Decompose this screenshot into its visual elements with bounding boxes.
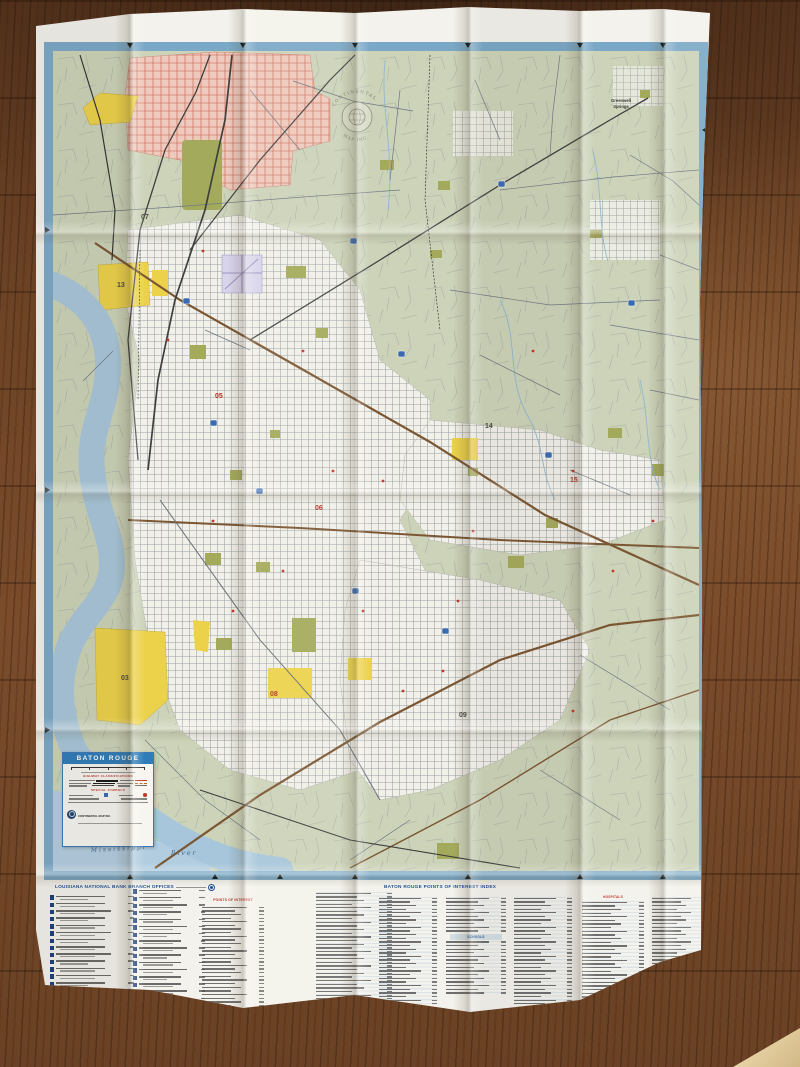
- index-row: [446, 988, 506, 991]
- index-row: [379, 977, 437, 980]
- index-row: [582, 956, 644, 959]
- bank-branch-row: [133, 932, 205, 938]
- index-row: [514, 963, 572, 966]
- index-row: [514, 908, 572, 911]
- index-row: [446, 973, 506, 976]
- index-row: [514, 977, 572, 980]
- index-row: [652, 933, 706, 936]
- index-row: [514, 992, 572, 995]
- index-row: [652, 915, 706, 918]
- index-row: [446, 952, 506, 955]
- index-row: [446, 959, 506, 962]
- grid-tick: [127, 874, 133, 879]
- grid-tick: [352, 43, 358, 48]
- index-row: [202, 931, 264, 934]
- bank-branch-row: [133, 968, 205, 974]
- district-number: 14: [485, 423, 493, 430]
- district-number: 08: [270, 691, 278, 698]
- index-row: [514, 955, 572, 958]
- index-column: [379, 897, 437, 1006]
- map-title-legend-box: BATON ROUGE HIGHWAY CLASSIFICATIONS SPEC…: [62, 752, 154, 847]
- index-row: [202, 993, 264, 996]
- bank-logo-icon: [208, 884, 215, 891]
- special-symbols-heading: SPECIAL SYMBOLS: [63, 788, 153, 792]
- bank-branch-row: [50, 924, 134, 930]
- index-row: [379, 930, 437, 933]
- index-row: [652, 908, 706, 911]
- index-row: [379, 937, 437, 940]
- map-title: BATON ROUGE: [63, 753, 153, 764]
- index-row: [202, 982, 264, 985]
- index-row: [446, 981, 506, 984]
- index-row: [514, 912, 572, 915]
- district-number: 15: [570, 477, 578, 484]
- index-row: [446, 941, 506, 944]
- index-row: [202, 986, 264, 989]
- index-row: [202, 972, 264, 975]
- bank-branch-row: [133, 925, 205, 931]
- index-row: [514, 948, 572, 951]
- grid-tick: [277, 874, 283, 879]
- index-row: [446, 944, 506, 947]
- district-number: 06: [315, 505, 323, 512]
- index-row: [514, 995, 572, 998]
- bank-branch-row: [133, 954, 205, 960]
- bank-branch-row: [133, 939, 205, 945]
- index-row: [514, 926, 572, 929]
- index-row: [202, 961, 264, 964]
- folded-map-sheet: 05 06 08 15 13 03 09 14 07 Greenwell Spr…: [34, 6, 712, 1014]
- index-row: [446, 930, 506, 933]
- index-row: [652, 919, 706, 922]
- index-row: [514, 901, 572, 904]
- index-column: [514, 897, 572, 1006]
- grid-tick: [660, 43, 666, 48]
- bank-branch-row: [133, 947, 205, 953]
- index-row: [446, 977, 506, 980]
- grid-tick: [45, 227, 50, 233]
- index-row: [379, 995, 437, 998]
- index-row: [514, 904, 572, 907]
- bank-branch-row: [133, 982, 205, 988]
- index-row: [379, 901, 437, 904]
- bank-branch-row: [50, 931, 134, 937]
- index-row: [379, 933, 437, 936]
- index-row: [582, 945, 644, 948]
- index-row: [316, 892, 392, 895]
- index-row: [652, 904, 706, 907]
- points-of-interest-header: POINTS OF INTEREST: [202, 898, 264, 902]
- index-row: [379, 926, 437, 929]
- index-row: [514, 915, 572, 918]
- grid-tick: [352, 874, 358, 879]
- poi-index-header: BATON ROUGE POINTS OF INTEREST INDEX: [384, 884, 496, 889]
- grid-tick: [127, 43, 133, 48]
- index-row: [582, 937, 644, 940]
- index-row: [652, 901, 706, 904]
- index-row: [652, 930, 706, 933]
- index-row: [202, 950, 264, 953]
- index-row: [582, 901, 644, 904]
- index-row: [202, 910, 264, 913]
- index-row: [514, 959, 572, 962]
- index-row: [202, 968, 264, 971]
- index-row: [446, 955, 506, 958]
- bank-branch-column: [50, 895, 134, 988]
- index-row: [582, 934, 644, 937]
- index-row: [446, 992, 506, 995]
- index-row: [446, 901, 506, 904]
- bank-branch-row: [50, 960, 134, 966]
- index-row: [582, 952, 644, 955]
- map-drawing: 05 06 08 15 13 03 09 14 07 Greenwell Spr…: [53, 51, 699, 871]
- bank-branch-row: [50, 945, 134, 951]
- index-row: [379, 915, 437, 918]
- index-row: [582, 970, 644, 973]
- highway-classifications-heading: HIGHWAY CLASSIFICATIONS: [63, 774, 153, 778]
- index-row: [379, 941, 437, 944]
- publisher-name: CONTINENTAL MAP INC.: [78, 814, 111, 818]
- index-row: [379, 963, 437, 966]
- bank-branch-row: [50, 917, 134, 923]
- index-row: [582, 908, 644, 911]
- index-row: [379, 955, 437, 958]
- index-row: [652, 937, 706, 940]
- index-row: [446, 963, 506, 966]
- photo-scene: 05 06 08 15 13 03 09 14 07 Greenwell Spr…: [0, 0, 800, 1067]
- index-row: [514, 897, 572, 900]
- index-row: [514, 919, 572, 922]
- bank-branch-row: [50, 909, 134, 915]
- grid-tick: [660, 874, 666, 879]
- bank-branch-row: [50, 902, 134, 908]
- grid-tick: [577, 43, 583, 48]
- index-row: [514, 937, 572, 940]
- index-row: [652, 922, 706, 925]
- index-row: [582, 948, 644, 951]
- bank-branch-row: [50, 953, 134, 959]
- index-row: [582, 916, 644, 919]
- district-number: 05: [215, 393, 223, 400]
- index-row: [202, 913, 264, 916]
- index-row: [446, 915, 506, 918]
- index-row: [514, 984, 572, 987]
- bank-branch-row: [133, 918, 205, 924]
- index-row: [446, 922, 506, 925]
- index-row: [514, 970, 572, 973]
- grid-tick: [212, 874, 218, 879]
- grid-tick: [45, 727, 50, 733]
- index-row: [514, 966, 572, 969]
- index-row: [379, 904, 437, 907]
- bank-branch-row: [133, 961, 205, 967]
- index-row: [202, 957, 264, 960]
- index-row: [582, 905, 644, 908]
- greenwell-springs-label: Greenwell Springs: [611, 98, 631, 109]
- index-row: [582, 930, 644, 933]
- bank-branch-row: [50, 974, 134, 980]
- index-row: [202, 946, 264, 949]
- airport-area: [222, 255, 262, 293]
- index-row: [514, 933, 572, 936]
- index-row: [379, 992, 437, 995]
- bank-branch-row: [133, 896, 205, 902]
- index-row: [202, 935, 264, 938]
- index-row: [582, 941, 644, 944]
- index-row: [446, 908, 506, 911]
- bank-branch-row: [50, 938, 134, 944]
- bank-branch-row: [133, 911, 205, 917]
- index-row: [514, 952, 572, 955]
- index-row: [582, 967, 644, 970]
- index-row: [446, 904, 506, 907]
- index-row: [652, 941, 706, 944]
- bank-branch-row: [133, 889, 205, 895]
- index-row: [202, 942, 264, 945]
- index-row: [446, 919, 506, 922]
- index-row: [446, 984, 506, 987]
- index-row: [202, 953, 264, 956]
- index-row: [582, 923, 644, 926]
- index-row: [514, 930, 572, 933]
- index-row: [514, 973, 572, 976]
- publisher-globe-icon: [67, 810, 76, 819]
- schools-header: SCHOOLS: [450, 934, 502, 940]
- index-row: [379, 897, 437, 900]
- index-row: [202, 928, 264, 931]
- index-row: [202, 975, 264, 978]
- index-row: [379, 922, 437, 925]
- svg-text:Springs: Springs: [613, 104, 629, 109]
- index-row: [514, 999, 572, 1002]
- bank-branch-column: [133, 889, 205, 1004]
- grid-tick: [465, 43, 471, 48]
- grid-tick: [240, 43, 246, 48]
- bank-branch-row: [133, 903, 205, 909]
- bank-branch-row: [50, 967, 134, 973]
- index-row: [652, 912, 706, 915]
- index-row: [379, 988, 437, 991]
- index-row: [582, 959, 644, 962]
- scale-bar: [71, 767, 145, 771]
- index-row: [202, 997, 264, 1000]
- hospitals-header: HOSPITALS: [582, 894, 644, 901]
- index-row: [446, 897, 506, 900]
- index-row: [446, 970, 506, 973]
- index-row: [652, 897, 706, 900]
- index-row: [379, 966, 437, 969]
- index-row: [202, 921, 264, 924]
- publisher-address: [78, 823, 142, 824]
- grid-tick: [577, 874, 583, 879]
- index-row: [514, 922, 572, 925]
- index-row: [379, 970, 437, 973]
- index-row: [514, 988, 572, 991]
- index-row: [379, 952, 437, 955]
- svg-text:River: River: [170, 850, 197, 857]
- bank-branch-row: [133, 975, 205, 981]
- index-row: [202, 906, 264, 909]
- index-row: [202, 924, 264, 927]
- index-row: [379, 981, 437, 984]
- index-row: [379, 908, 437, 911]
- index-row: [652, 944, 706, 947]
- grid-tick: [465, 874, 471, 879]
- index-row: [446, 948, 506, 951]
- index-row: [202, 964, 264, 967]
- scale-caption: [81, 772, 135, 773]
- poi-column: [202, 906, 264, 1008]
- index-row: [446, 926, 506, 929]
- district-number: 03: [121, 675, 129, 682]
- index-row: [379, 984, 437, 987]
- index-row: [379, 948, 437, 951]
- bank-branch-row: [50, 895, 134, 901]
- district-number: 13: [117, 282, 125, 289]
- index-row: [379, 973, 437, 976]
- index-row: [446, 912, 506, 915]
- index-row: [379, 944, 437, 947]
- index-row: [514, 941, 572, 944]
- index-row: [582, 963, 644, 966]
- svg-text:Greenwell: Greenwell: [611, 98, 631, 103]
- index-row: [514, 981, 572, 984]
- index-row: [202, 939, 264, 942]
- district-number: 07: [141, 214, 149, 221]
- grid-tick: [45, 487, 50, 493]
- index-row: [202, 979, 264, 982]
- index-row: [379, 912, 437, 915]
- index-row: [379, 959, 437, 962]
- index-row: [652, 926, 706, 929]
- index-row: [582, 912, 644, 915]
- city-map: 05 06 08 15 13 03 09 14 07 Greenwell Spr…: [53, 51, 699, 871]
- index-row: [379, 919, 437, 922]
- index-row: [202, 917, 264, 920]
- index-row: [652, 948, 706, 951]
- district-number: 09: [459, 712, 467, 719]
- index-row: [446, 966, 506, 969]
- index-row: [582, 926, 644, 929]
- index-column-schools: SCHOOLS: [446, 897, 506, 995]
- index-row: [582, 919, 644, 922]
- index-row: [202, 990, 264, 993]
- index-row: [514, 944, 572, 947]
